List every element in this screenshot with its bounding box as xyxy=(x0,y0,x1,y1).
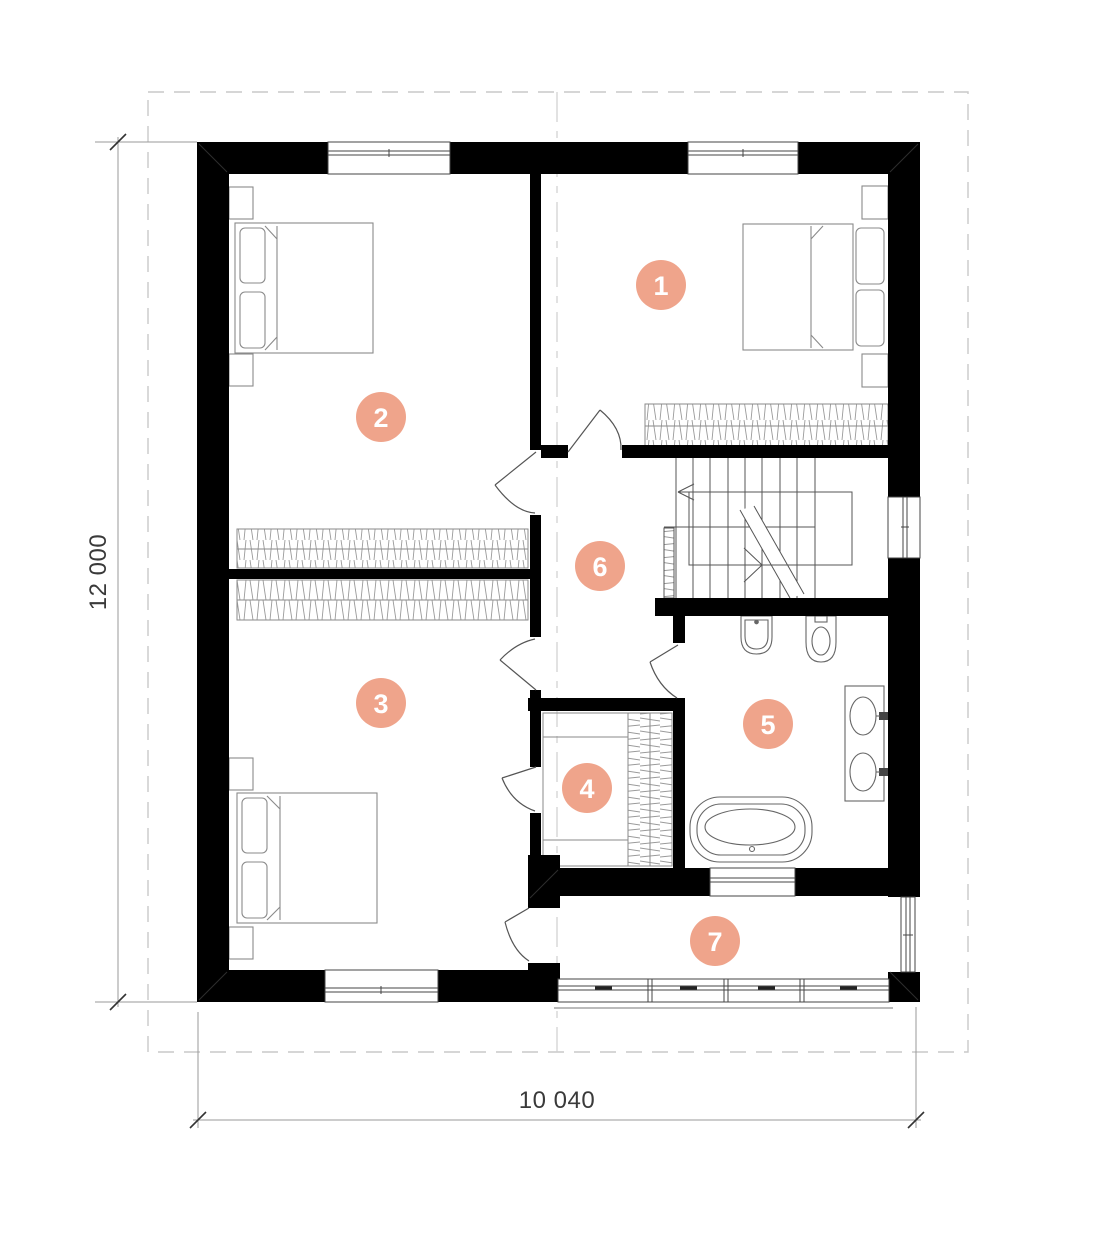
faucet-icon xyxy=(879,768,888,776)
wardrobe-room2 xyxy=(237,529,528,568)
stair-rail-strip xyxy=(664,528,674,598)
nightstand xyxy=(229,758,253,790)
floor-plan-canvas: 1 2 3 4 5 6 7 xyxy=(0,0,1120,1234)
window-bath-balcony xyxy=(710,868,795,896)
pillow xyxy=(856,228,884,284)
wardrobe-room1 xyxy=(645,404,888,446)
stair-break-line xyxy=(740,510,790,598)
bidet-symbol xyxy=(806,616,836,662)
floor-plan-page: 1 2 3 4 5 6 7 xyxy=(0,0,1120,1234)
room-badge-5: 5 xyxy=(743,699,793,749)
bathroom-fixtures xyxy=(690,616,888,862)
double-sink-symbol xyxy=(845,686,888,801)
stair-direction-arrow xyxy=(678,484,820,582)
pillow xyxy=(242,798,267,853)
pillow xyxy=(240,292,265,348)
stair-break-mask xyxy=(740,506,804,598)
pillow xyxy=(242,862,267,918)
nightstand xyxy=(229,927,253,959)
room-number-label: 7 xyxy=(707,927,722,957)
balcony-side-glazing xyxy=(901,897,915,972)
door-closet xyxy=(502,767,536,811)
window-stairwell xyxy=(888,497,920,558)
room-badge-3: 3 xyxy=(356,678,406,728)
faucet-icon xyxy=(879,712,888,720)
bathtub-symbol xyxy=(690,797,812,862)
window-room1 xyxy=(688,142,798,174)
toilet-symbol xyxy=(741,616,772,654)
room-number-label: 1 xyxy=(653,271,668,301)
bed-symbol-room1 xyxy=(743,186,888,387)
room-number-label: 3 xyxy=(373,689,388,719)
nightstand xyxy=(862,186,888,219)
door-room1 xyxy=(568,410,621,452)
door-room2 xyxy=(495,452,536,513)
room-number-label: 6 xyxy=(592,552,607,582)
door-balcony xyxy=(505,908,529,961)
nightstand xyxy=(229,354,253,386)
room-number-label: 5 xyxy=(760,710,775,740)
window-room2 xyxy=(328,142,450,174)
room-badge-7: 7 xyxy=(690,916,740,966)
room-number-label: 2 xyxy=(373,403,388,433)
pillow xyxy=(856,290,884,346)
wardrobe-room3 xyxy=(237,580,528,620)
nightstand xyxy=(862,354,888,387)
room-badge-4: 4 xyxy=(562,763,612,813)
pillow xyxy=(240,228,265,283)
bed-symbol-room3 xyxy=(229,758,377,959)
room-badge-2: 2 xyxy=(356,392,406,442)
door-bathroom xyxy=(650,645,678,698)
room-number-label: 4 xyxy=(579,774,594,804)
room-badge-6: 6 xyxy=(575,541,625,591)
vertical-dimension-label: 12 000 xyxy=(85,534,112,610)
staircase xyxy=(664,458,852,598)
bed-symbol-room2 xyxy=(229,187,373,386)
nightstand xyxy=(229,187,253,219)
door-room3 xyxy=(500,639,536,690)
room-badge-1: 1 xyxy=(636,260,686,310)
window-room3 xyxy=(325,970,438,1002)
horizontal-dimension-label: 10 040 xyxy=(519,1087,595,1114)
